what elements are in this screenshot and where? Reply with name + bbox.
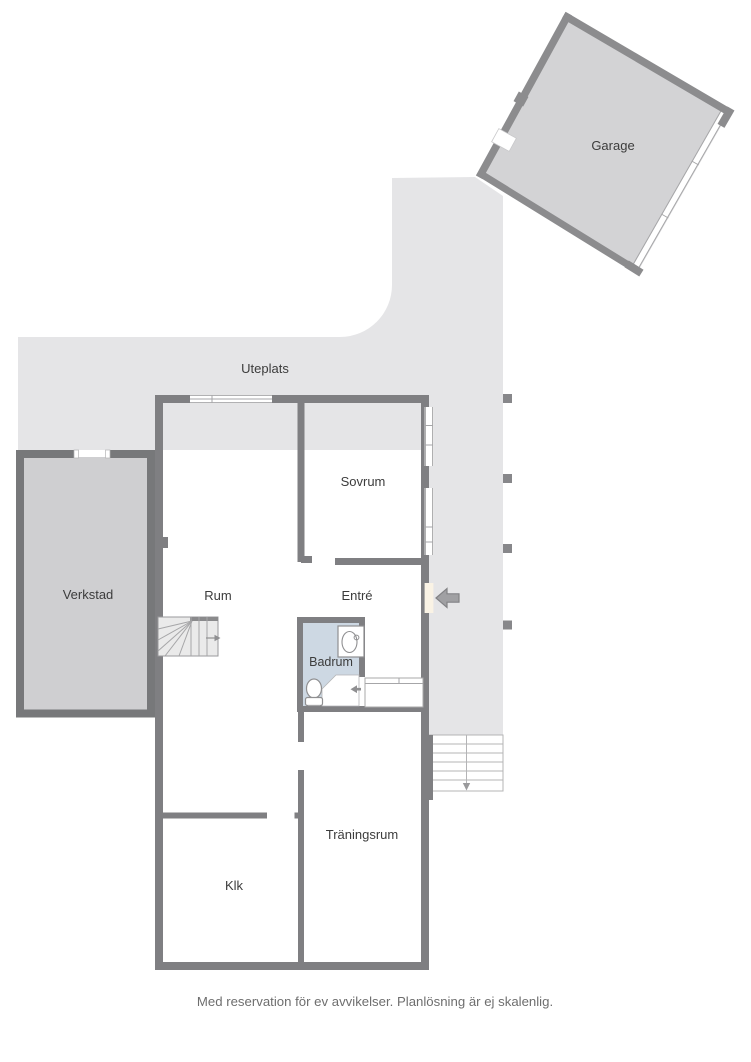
verkstad-label: Verkstad: [63, 587, 114, 602]
post: [503, 544, 512, 553]
toilet-icon: [306, 679, 323, 706]
traningsrum-label: Träningsrum: [326, 827, 398, 842]
floorplan-page: Garage Verkstad: [0, 0, 751, 1062]
post: [503, 621, 512, 630]
stairs-down-arrow-icon: [463, 783, 470, 791]
window: [190, 395, 272, 404]
window: [425, 407, 434, 466]
verkstad-door-opening: [106, 450, 111, 458]
disclaimer-caption: Med reservation för ev avvikelser. Planl…: [197, 994, 553, 1009]
uteplats-label: Uteplats: [241, 361, 289, 376]
post: [503, 394, 512, 403]
verkstad-door-opening: [74, 450, 79, 458]
badrum-label: Badrum: [309, 655, 353, 669]
rum-label: Rum: [204, 588, 231, 603]
closet: [365, 678, 423, 707]
verkstad-building: Verkstad: [16, 450, 158, 718]
window: [425, 488, 434, 555]
klk-label: Klk: [225, 878, 244, 893]
sink-icon: [338, 626, 364, 657]
garage-building: Garage: [481, 17, 729, 271]
floorplan-canvas: Garage Verkstad: [0, 0, 751, 1062]
wall-pier: [155, 537, 168, 548]
entre-label: Entré: [341, 588, 372, 603]
sovrum-label: Sovrum: [341, 474, 386, 489]
walkway-posts: [503, 394, 512, 630]
post: [503, 474, 512, 483]
exterior-stairs: [429, 735, 503, 791]
garage-label: Garage: [591, 138, 634, 153]
bathroom: Badrum: [303, 623, 364, 706]
verkstad-room: [24, 457, 151, 713]
house: Badrum Sovrum R: [155, 395, 433, 966]
wall-extension: [425, 735, 433, 800]
interior-stairs: [158, 617, 221, 656]
entrance-door-opening: [425, 583, 434, 613]
